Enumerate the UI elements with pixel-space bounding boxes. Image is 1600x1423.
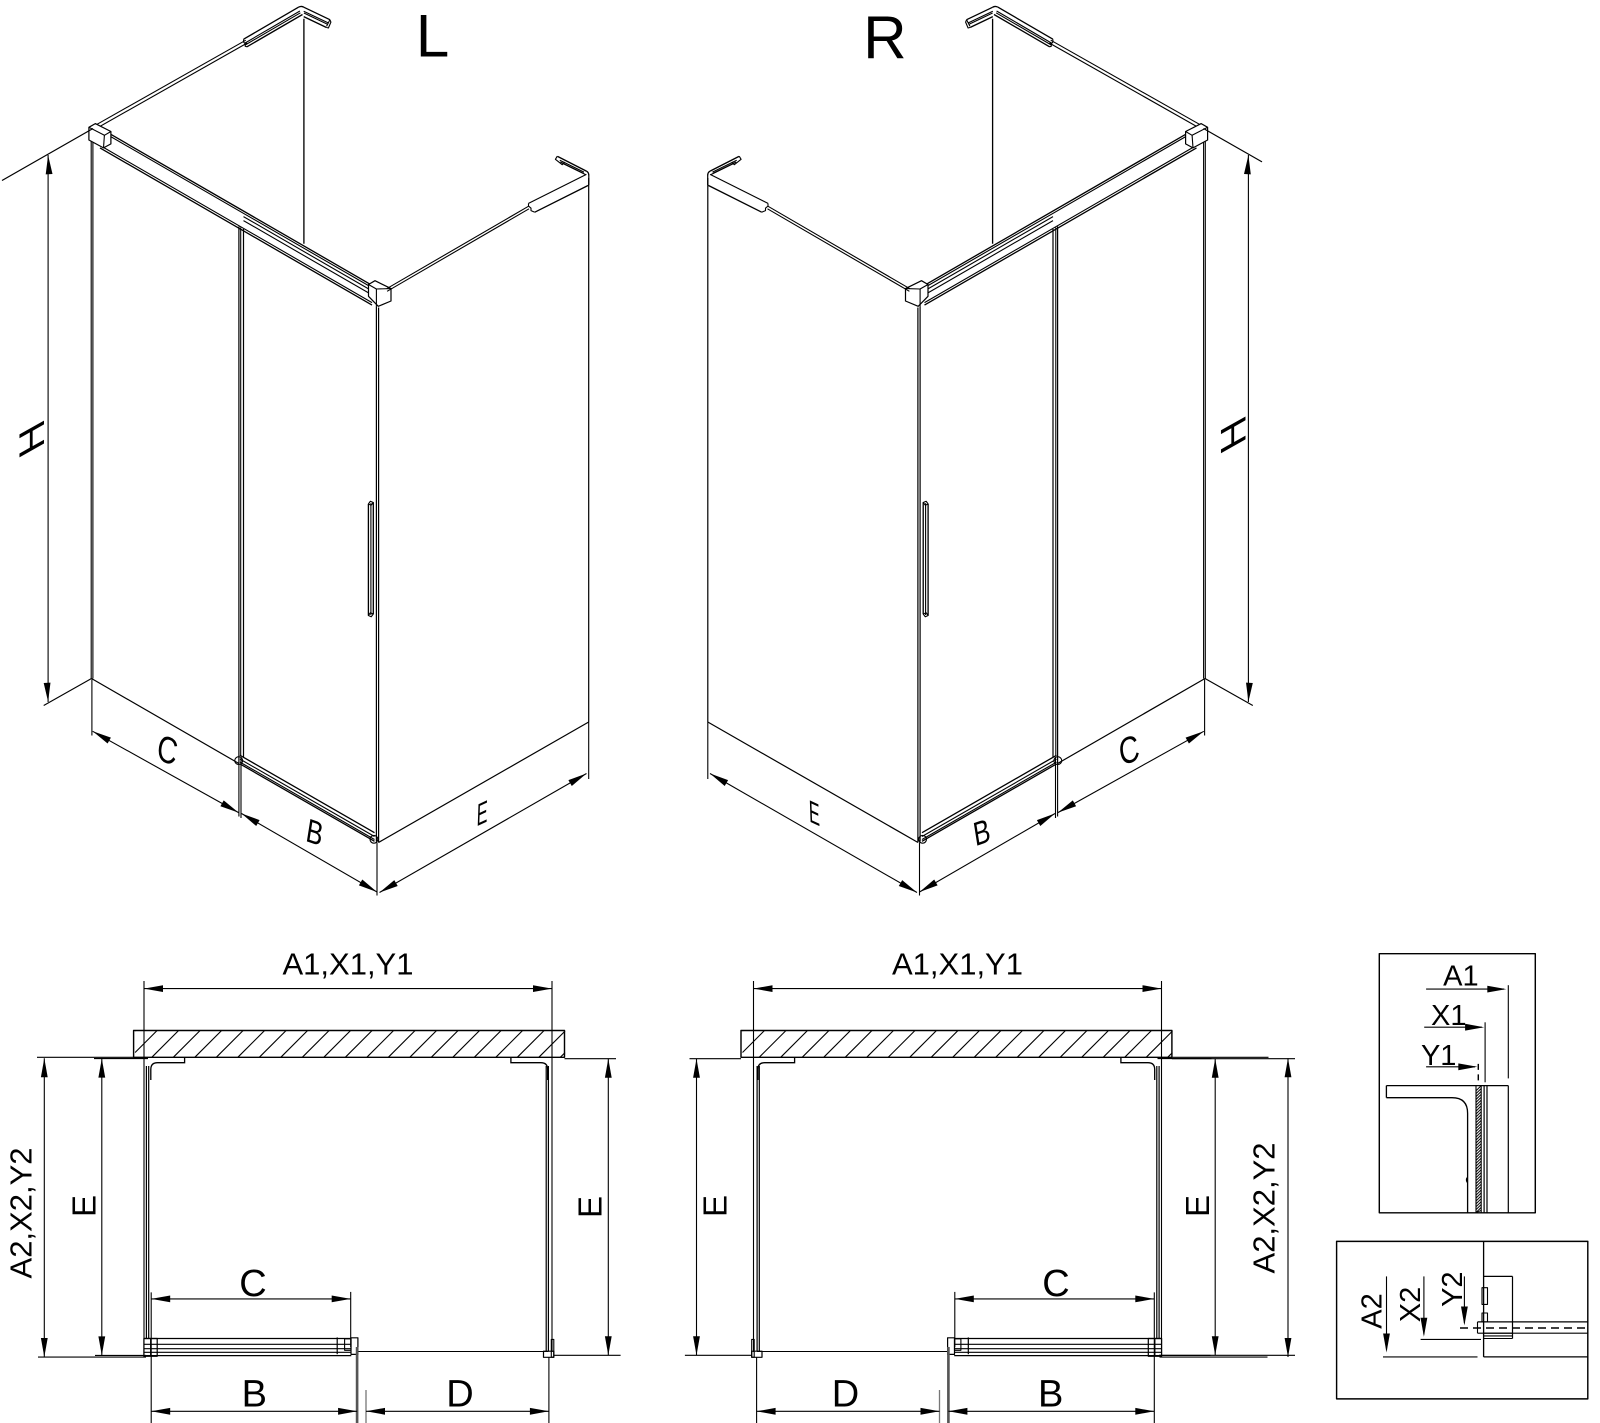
- svg-text:X2: X2: [1395, 1287, 1427, 1322]
- svg-text:A1,X1,Y1: A1,X1,Y1: [283, 946, 414, 981]
- svg-text:D: D: [446, 1374, 473, 1416]
- svg-text:B: B: [242, 1374, 267, 1416]
- svg-text:E: E: [1179, 1195, 1216, 1217]
- svg-text:A2: A2: [1356, 1293, 1388, 1328]
- svg-text:L: L: [416, 3, 449, 70]
- svg-text:C: C: [239, 1263, 266, 1305]
- svg-text:A1,X1,Y1: A1,X1,Y1: [892, 946, 1023, 981]
- svg-text:A1: A1: [1443, 961, 1478, 993]
- svg-text:X1: X1: [1431, 1000, 1466, 1032]
- svg-text:A2,X2,Y2: A2,X2,Y2: [4, 1148, 39, 1279]
- svg-text:E: E: [808, 794, 820, 833]
- svg-text:D: D: [832, 1374, 859, 1416]
- svg-text:E: E: [697, 1195, 734, 1217]
- svg-text:E: E: [66, 1195, 103, 1217]
- svg-text:R: R: [863, 5, 906, 72]
- svg-text:E: E: [476, 794, 488, 833]
- svg-text:Y1: Y1: [1421, 1040, 1456, 1072]
- svg-text:A2,X2,Y2: A2,X2,Y2: [1246, 1143, 1281, 1274]
- svg-text:B: B: [1038, 1374, 1063, 1416]
- svg-text:C: C: [1042, 1263, 1069, 1305]
- svg-text:Y2: Y2: [1437, 1271, 1469, 1306]
- svg-text:E: E: [572, 1196, 609, 1218]
